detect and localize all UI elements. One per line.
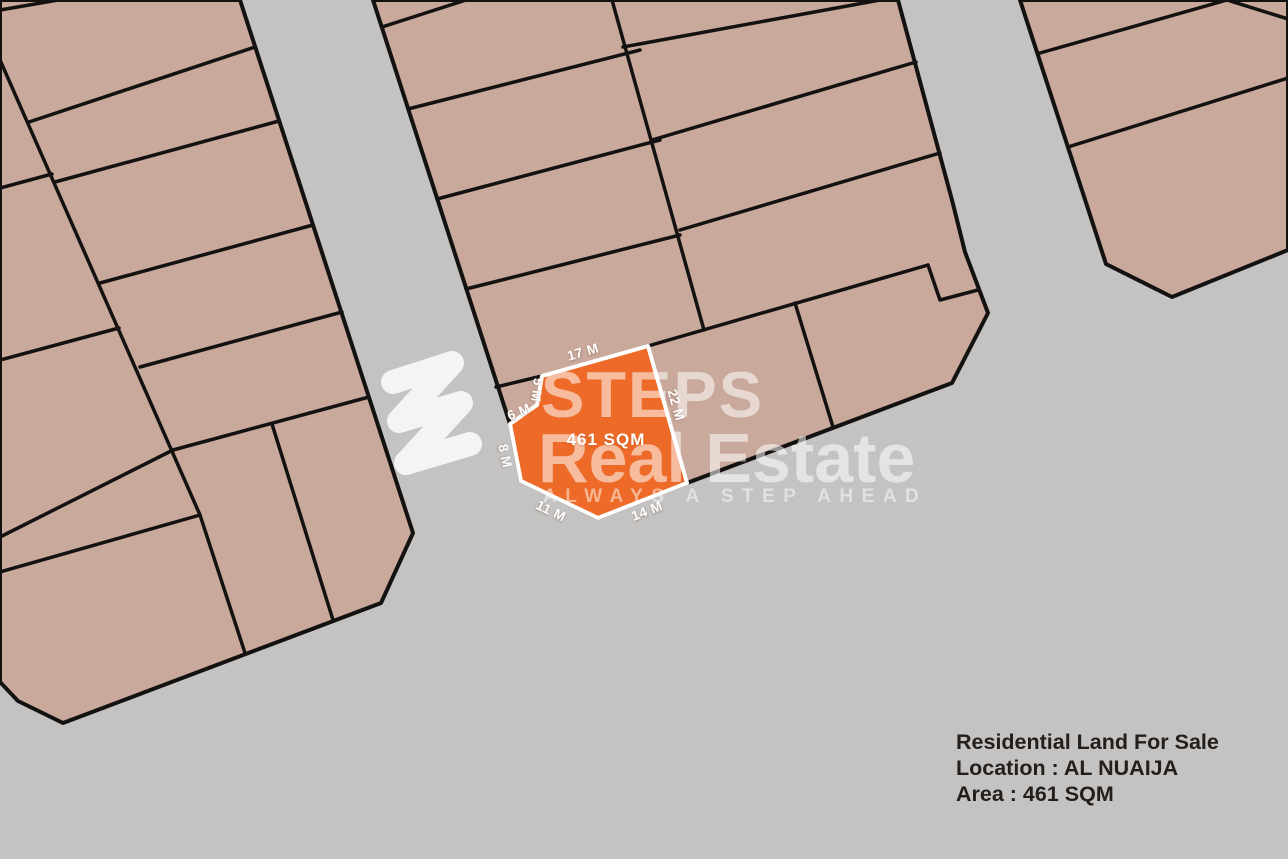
listing-location: Location : AL NUAIJA: [956, 755, 1219, 781]
plot-map: STEPS Real Estate ALWAYS A STEP AHEAD 17…: [0, 0, 1288, 859]
dimension-label-notch-upper: 5 M: [528, 377, 546, 403]
listing-title: Residential Land For Sale: [956, 729, 1219, 755]
listing-info: Residential Land For Sale Location : AL …: [956, 729, 1219, 807]
listing-area: Area : 461 SQM: [956, 781, 1219, 807]
area-label: 461 SQM: [567, 430, 646, 450]
